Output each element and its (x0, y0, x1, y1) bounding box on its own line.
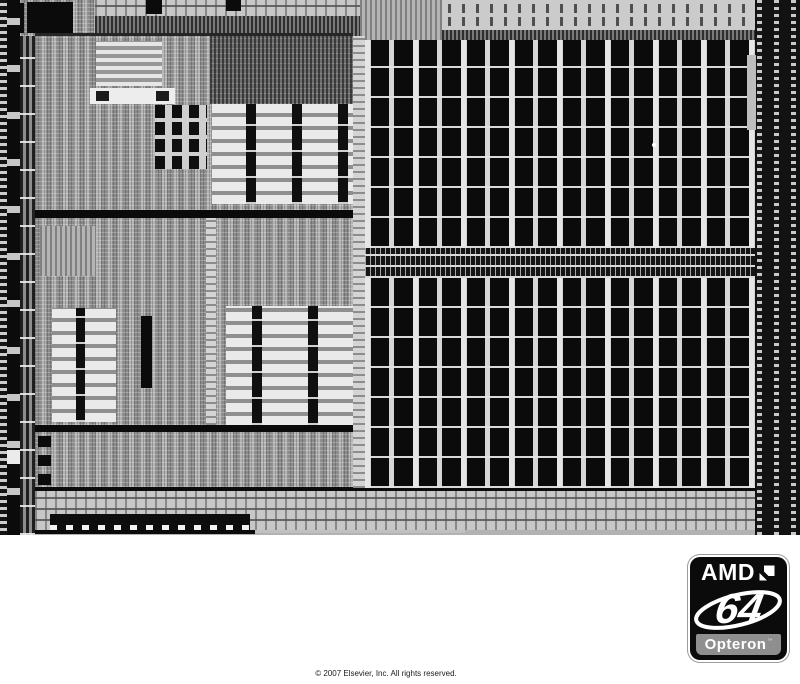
logo-64-emblem: 64 (691, 585, 786, 635)
die-top-dense-row (442, 30, 755, 40)
die-core-upper-sram-sep-3 (338, 104, 348, 204)
die-left-stripe-column (20, 36, 35, 535)
die-core-lower-chip-3 (38, 474, 51, 485)
die-core-striped-array (96, 41, 162, 86)
die-core-divider-1 (35, 210, 353, 218)
die-top-chip-block-1 (146, 0, 162, 14)
die-cache-edge-chip (747, 55, 756, 130)
die-right-dotline-2 (774, 0, 779, 535)
die-photo (0, 0, 800, 535)
die-core-middle-black-bar (141, 316, 152, 388)
die-core-lower-chip-2 (38, 455, 51, 466)
die-core-dark-array (155, 105, 207, 169)
die-right-dotline-1 (757, 0, 762, 535)
logo-top-row: AMD (690, 561, 787, 584)
opteron-product-text: Opteron (705, 637, 767, 652)
die-core-white-bar-contact-right (156, 91, 169, 101)
amd64-opteron-logo: AMD 64 Opteron ™ (690, 557, 787, 660)
amd-brand-text: AMD (701, 561, 755, 584)
die-core-middle-sram-right-sep-2 (308, 306, 318, 425)
die-top-chip-block-2 (226, 0, 241, 11)
logo-64-text: 64 (711, 588, 765, 630)
die-top-stripe-block (360, 0, 442, 40)
die-cache-center-band (365, 248, 755, 278)
die-core-dense-logic (210, 36, 353, 104)
die-bottom-dashed-bar (50, 514, 250, 530)
die-core-upper-sram-sep-1 (246, 104, 256, 204)
logo-opteron-bar: Opteron ™ (696, 634, 781, 655)
die-core-middle-sram-right (226, 306, 353, 425)
die-core-middle-channel (206, 218, 216, 425)
die-left-ladder-strip (0, 0, 7, 535)
die-defect-dot (652, 143, 656, 147)
die-core-cache-separator (353, 36, 365, 488)
die-top-tick-row-2 (448, 17, 748, 26)
amd-arrow-icon (758, 564, 776, 582)
die-core-middle-stripe-block (40, 226, 96, 276)
die-bottom-edge-right (255, 530, 465, 533)
die-core-divider-2 (35, 425, 353, 432)
die-bottom-edge-left (0, 530, 255, 534)
die-core-lower-logic (35, 432, 353, 487)
die-core-upper-sram-sep-2 (292, 104, 302, 204)
die-core-middle-sram-left-sep (76, 308, 85, 422)
trademark-symbol: ™ (767, 638, 772, 644)
die-core-white-bar-contact-left (96, 91, 109, 101)
die-core-middle-sram-right-sep-1 (252, 306, 262, 425)
figure-copyright: © 2007 Elsevier, Inc. All rights reserve… (0, 669, 772, 678)
die-right-edge-column (755, 0, 800, 535)
die-right-dotline-3 (791, 0, 796, 535)
die-top-left-sram-block (27, 2, 73, 33)
die-core-upper-sram-array (212, 104, 353, 204)
die-left-white-chip (7, 450, 20, 464)
die-core-white-bar (90, 88, 175, 104)
die-top-tick-row-1 (448, 4, 748, 13)
die-core-lower-chip-1 (38, 436, 51, 447)
